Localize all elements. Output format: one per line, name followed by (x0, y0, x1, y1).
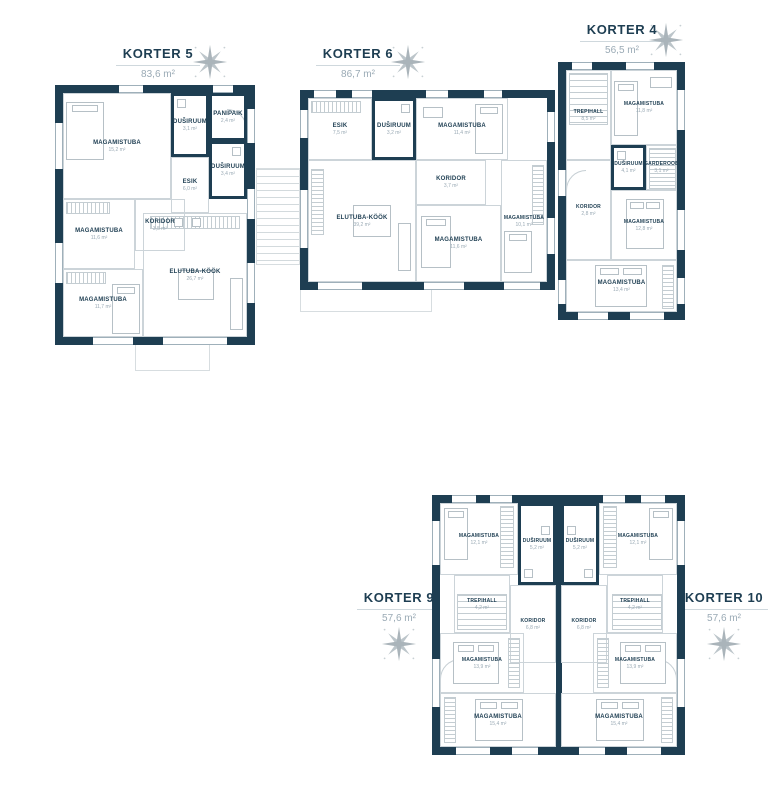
room-name: TREPIHALL (467, 598, 497, 605)
unit-area: 86,7 m² (316, 65, 400, 80)
room: MAGAMISTUBA 11,4 m² (416, 98, 508, 160)
room-area: 15,4 m² (611, 721, 628, 727)
wardrobe-icon (66, 272, 106, 284)
room: MAGAMISTUBA 12,1 m² (599, 503, 677, 575)
room-area: 8,5 m² (581, 116, 595, 122)
window (626, 62, 654, 70)
compass-icon (390, 44, 426, 80)
wardrobe-icon (661, 697, 673, 743)
room-area: 15,4 m² (490, 721, 507, 727)
room: DUŠIRUUM 3,1 m² (171, 93, 209, 157)
room: MAGAMISTUBA 13,9 m² (440, 633, 524, 693)
toilet-icon (584, 569, 593, 578)
room-name: PANIPAIK (213, 111, 242, 118)
room-area: 3,4 m² (221, 171, 235, 177)
room: KORIDOR 3,7 m² (416, 160, 486, 205)
room-name: MAGAMISTUBA (435, 237, 483, 244)
bed-icon (112, 284, 140, 334)
room-name: MAGAMISTUBA (595, 714, 643, 721)
wardrobe-icon (603, 506, 617, 568)
room-area: 3,5 m² (153, 226, 167, 232)
window (677, 210, 685, 250)
room-name: DUŠIRUUM (523, 538, 552, 545)
window (432, 521, 440, 565)
room-name: KORIDOR (145, 219, 175, 226)
unit-title-korter5: KORTER 5 83,6 m² (116, 46, 200, 80)
room: MAGAMISTUBA 15,4 m² (440, 693, 556, 747)
room: DUŠIRUUM 3,2 m² (372, 98, 416, 160)
window (452, 495, 476, 503)
room-area: 11,6 m² (91, 235, 108, 241)
wardrobe-icon (66, 202, 110, 214)
room: DUŠIRUUM 5,2 m² (561, 503, 599, 585)
room: MAGAMISTUBA 11,8 m² (611, 70, 677, 145)
room-name: MAGAMISTUBA (438, 123, 486, 130)
room-area: 12,8 m² (636, 226, 653, 232)
room-name: MAGAMISTUBA (615, 657, 655, 664)
window (558, 280, 566, 304)
room: MAGAMISTUBA 15,4 m² (561, 693, 677, 747)
room-area: 12,1 m² (630, 540, 647, 546)
unit-korter6-plan: ESIK 7,5 m² DUŠIRUUM 3,2 m² MAGAMISTUBA … (300, 90, 555, 290)
room: MAGAMISTUBA 11,7 m² (63, 269, 143, 337)
shower-icon (401, 104, 410, 113)
desk-icon (423, 107, 443, 118)
wardrobe-icon (311, 101, 361, 113)
room-area: 7,5 m² (333, 130, 347, 136)
room: GARDEROOB 3,1 m² (646, 145, 677, 190)
shower-icon (617, 151, 626, 160)
room: ELUTUBA-KÖÖK 39,2 m² (308, 160, 416, 282)
room-area: 5,2 m² (573, 545, 587, 551)
room: ELUTUBA-KÖÖK 26,7 m² (143, 213, 247, 337)
room-name: MAGAMISTUBA (618, 533, 658, 540)
wardrobe-icon (444, 697, 456, 743)
room-name: GARDEROOB (644, 161, 679, 168)
room-name: TREPIHALL (574, 109, 604, 116)
window (677, 659, 685, 707)
unit-korter4-plan: TREPIHALL 8,5 m² MAGAMISTUBA 11,8 m² KOR… (558, 62, 685, 320)
room-area: 3,1 m² (654, 168, 668, 174)
room: MAGAMISTUBA 11,6 m² (63, 199, 135, 269)
room: KORIDOR 2,8 m² (566, 160, 611, 260)
shower-icon (541, 526, 550, 535)
compass-icon (648, 22, 684, 58)
toilet-icon (232, 147, 241, 156)
room-area: 2,8 m² (581, 211, 595, 217)
room-name: MAGAMISTUBA (459, 533, 499, 540)
room: MAGAMISTUBA 12,1 m² (440, 503, 518, 575)
window (677, 90, 685, 130)
window (318, 282, 362, 290)
room: DUŠIRUUM 3,4 m² (209, 141, 247, 199)
room-area: 11,6 m² (450, 244, 467, 250)
room: TREPIHALL 4,2 m² (454, 575, 510, 633)
room-area: 4,2 m² (475, 605, 489, 611)
room-name: ELUTUBA-KÖÖK (336, 215, 387, 222)
window (572, 62, 592, 70)
unit-name: KORTER 5 (116, 46, 200, 61)
stove-icon (192, 218, 201, 227)
wardrobe-icon (500, 506, 514, 568)
room-area: 2,4 m² (221, 118, 235, 124)
room-name: MAGAMISTUBA (75, 228, 123, 235)
window (213, 85, 233, 93)
room-name: MAGAMISTUBA (462, 657, 502, 664)
room-name: MAGAMISTUBA (474, 714, 522, 721)
window (512, 747, 538, 755)
room-area: 12,1 m² (471, 540, 488, 546)
room-area: 11,7 m² (95, 304, 112, 310)
terrace-outline (135, 345, 210, 371)
room-area: 13,9 m² (474, 664, 491, 670)
sink-icon (174, 218, 183, 227)
unit-name: KORTER 10 (680, 590, 768, 605)
room: MAGAMISTUBA 11,6 m² (416, 205, 501, 282)
window (55, 123, 63, 169)
room-name: KORIDOR (571, 618, 596, 625)
room-name: ESIK (183, 179, 198, 186)
room-name: KORIDOR (436, 176, 466, 183)
room: MAGAMISTUBA 13,4 m² (566, 260, 677, 312)
room-area: 3,1 m² (183, 126, 197, 132)
window (55, 243, 63, 283)
room: DUŠIRUUM 4,1 m² (611, 145, 646, 190)
room-area: 39,2 m² (354, 222, 371, 228)
unit-name: KORTER 6 (316, 46, 400, 61)
window (426, 90, 448, 98)
window (579, 747, 605, 755)
unit-area: 57,6 m² (680, 609, 768, 624)
unit-area: 83,6 m² (116, 65, 200, 80)
sofa-icon (230, 278, 243, 330)
window (424, 282, 464, 290)
window (630, 312, 664, 320)
window (641, 495, 665, 503)
room: TREPIHALL 8,5 m² (566, 70, 611, 160)
window (677, 521, 685, 565)
wardrobe-icon (597, 638, 609, 688)
wardrobe-icon (662, 265, 674, 309)
window (627, 747, 661, 755)
bed-icon (614, 81, 638, 136)
toilet-icon (524, 569, 533, 578)
window (490, 495, 512, 503)
room: ESIK 7,5 m² (308, 98, 372, 160)
room-area: 15,2 m² (109, 147, 126, 153)
unit-name: KORTER 9 (357, 590, 441, 605)
unit-title-korter10: KORTER 10 57,6 m² (680, 590, 768, 624)
room-name: ELUTUBA-KÖÖK (169, 269, 220, 276)
window (578, 312, 608, 320)
unit-title-korter9: KORTER 9 57,6 m² (357, 590, 441, 624)
room-area: 11,4 m² (454, 130, 471, 136)
room: DUŠIRUUM 5,2 m² (518, 503, 556, 585)
room-area: 10,1 m² (516, 222, 533, 228)
room-area: 6,0 m² (183, 186, 197, 192)
room-name: MAGAMISTUBA (504, 215, 544, 222)
room-area: 4,2 m² (628, 605, 642, 611)
desk-icon (650, 77, 672, 88)
room-area: 6,8 m² (526, 625, 540, 631)
room: PANIPAIK 2,4 m² (209, 93, 247, 141)
window (558, 170, 566, 196)
window (352, 90, 372, 98)
window (247, 263, 255, 303)
room: MAGAMISTUBA 13,9 m² (593, 633, 677, 693)
compass-icon (192, 44, 228, 80)
room-name: DUŠIRUUM (614, 161, 643, 168)
shower-icon (177, 99, 186, 108)
room-area: 3,2 m² (387, 130, 401, 136)
window (547, 112, 555, 142)
window (163, 337, 227, 345)
window (247, 109, 255, 143)
room-name: MAGAMISTUBA (79, 297, 127, 304)
room-name: KORIDOR (576, 204, 601, 211)
room-name: DUŠIRUUM (211, 164, 245, 171)
room-area: 13,9 m² (627, 664, 644, 670)
unit-area: 57,6 m² (357, 609, 441, 624)
room-name: DUŠIRUUM (377, 123, 411, 130)
unit-korter5-plan: MAGAMISTUBA 15,2 m² DUŠIRUUM 3,1 m² PANI… (55, 85, 255, 345)
window (504, 282, 540, 290)
window (677, 278, 685, 304)
room-name: MAGAMISTUBA (624, 219, 664, 226)
room-area: 3,7 m² (444, 183, 458, 189)
window (432, 659, 440, 707)
unit-korter9-korter10-plan: MAGAMISTUBA 12,1 m² DUŠIRUUM 5,2 m² TREP… (432, 495, 685, 755)
window (119, 85, 143, 93)
room-area: 26,7 m² (187, 276, 204, 282)
room-area: 11,8 m² (636, 108, 653, 114)
room-name: MAGAMISTUBA (598, 280, 646, 287)
room-name: TREPIHALL (620, 598, 650, 605)
room-name: DUŠIRUUM (566, 538, 595, 545)
room-area: 13,4 m² (613, 287, 630, 293)
room-name: KORIDOR (520, 618, 545, 625)
room-area: 6,8 m² (577, 625, 591, 631)
room-name: MAGAMISTUBA (93, 140, 141, 147)
window (603, 495, 625, 503)
room-name: DUŠIRUUM (173, 119, 207, 126)
kitchen-counter-icon (311, 169, 324, 235)
floor-plan-page: KORTER 5 83,6 m² KORTER 6 86,7 m² KORTER… (0, 0, 784, 800)
room: MAGAMISTUBA 10,1 m² (501, 160, 547, 282)
window (484, 90, 502, 98)
room: MAGAMISTUBA 12,8 m² (611, 190, 677, 260)
bed-icon (66, 102, 104, 160)
compass-icon (381, 626, 417, 662)
compass-icon (706, 626, 742, 662)
room-name: ESIK (333, 123, 348, 130)
shower-icon (567, 526, 576, 535)
sofa-icon (398, 223, 411, 271)
window (547, 218, 555, 254)
wardrobe-icon (508, 638, 520, 688)
exterior-stairs (256, 168, 300, 265)
room-area: 4,1 m² (621, 168, 635, 174)
room: TREPIHALL 4,2 m² (607, 575, 663, 633)
room: MAGAMISTUBA 15,2 m² (63, 93, 171, 199)
window (300, 110, 308, 138)
window (247, 189, 255, 219)
unit-title-korter6: KORTER 6 86,7 m² (316, 46, 400, 80)
bed-icon (504, 231, 532, 273)
room-name: MAGAMISTUBA (624, 101, 664, 108)
window (314, 90, 336, 98)
window (93, 337, 133, 345)
window (300, 190, 308, 248)
terrace-outline (300, 290, 432, 312)
window (456, 747, 490, 755)
room-area: 5,2 m² (530, 545, 544, 551)
